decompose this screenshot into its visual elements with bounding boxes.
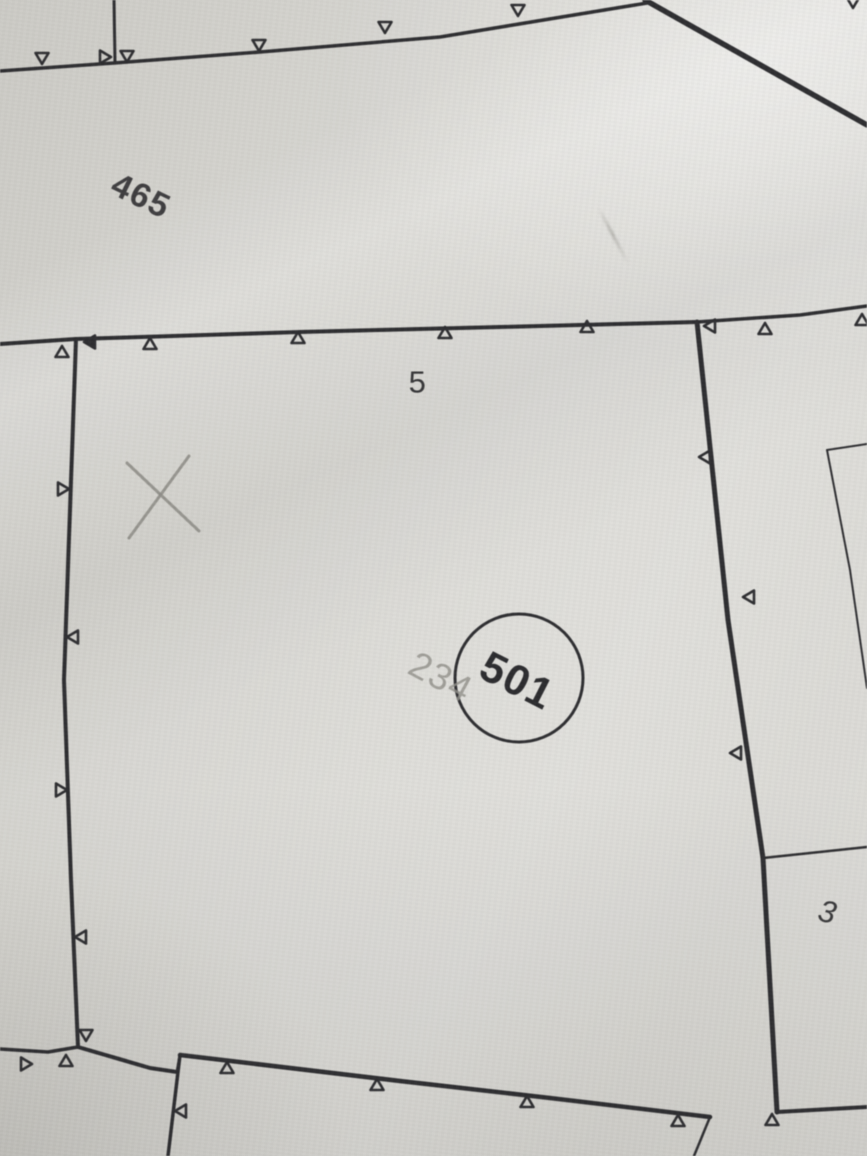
survey-marker-icon (766, 1114, 779, 1125)
label-parcel-501: 501 (472, 642, 562, 719)
cadastral-map: 46555012343 (0, 0, 867, 1156)
boundary-top-fence (0, 3, 647, 71)
survey-marker-icon (253, 40, 266, 51)
survey-marker-icon (221, 1062, 234, 1073)
survey-marker-icon (21, 1058, 32, 1071)
survey-marker-icon (759, 323, 772, 334)
survey-marker-icon (36, 53, 49, 64)
survey-marker-icon (75, 931, 86, 944)
survey-marker-icon (60, 1055, 73, 1066)
pencil-cross-icon (127, 463, 199, 531)
survey-marker-icon (699, 451, 710, 464)
boundary-parcel5-left (64, 339, 78, 1047)
label-parcel-5: 5 (409, 365, 428, 400)
survey-marker-icon (730, 747, 741, 760)
label-parcel-465: 465 (105, 166, 177, 227)
boundary-top-left-vertical (114, 0, 115, 63)
map-photo: 46555012343 (0, 0, 867, 1156)
boundary-parcel5-top-east (697, 306, 867, 322)
survey-marker-icon (144, 338, 157, 349)
survey-marker-icon (56, 784, 67, 797)
label-pencil-234: 234 (402, 643, 480, 710)
boundary-bottom-east (777, 1107, 867, 1112)
boundary-thin-rect-left (827, 450, 867, 688)
boundary-parcel5-bottom-west (78, 1047, 177, 1072)
survey-marker-icon (743, 591, 754, 604)
boundary-bottom-parcel-top (180, 1055, 710, 1117)
boundary-thin-rect-top (827, 444, 867, 450)
survey-marker-icon (58, 483, 69, 496)
survey-marker-icon (512, 5, 525, 16)
survey-marker-icon (672, 1115, 685, 1126)
survey-marker-icon (80, 1030, 93, 1041)
survey-marker-icon (67, 631, 78, 644)
pencil-cross-icon (129, 456, 189, 538)
label-parcel-3: 3 (815, 893, 842, 931)
survey-marker-icon (175, 1105, 186, 1118)
boundary-parcel5-right (697, 322, 777, 1112)
survey-marker-icon (100, 51, 111, 64)
survey-marker-icon (56, 346, 69, 357)
boundary-thin-line-east (763, 847, 867, 858)
boundary-thin-branch-south (694, 1117, 710, 1156)
boundary-west-line (0, 1047, 78, 1052)
boundary-top-diagonal (645, 0, 867, 125)
survey-marker-icon (379, 22, 392, 33)
survey-marker-icon (847, 0, 860, 8)
survey-marker-icon (856, 314, 867, 325)
